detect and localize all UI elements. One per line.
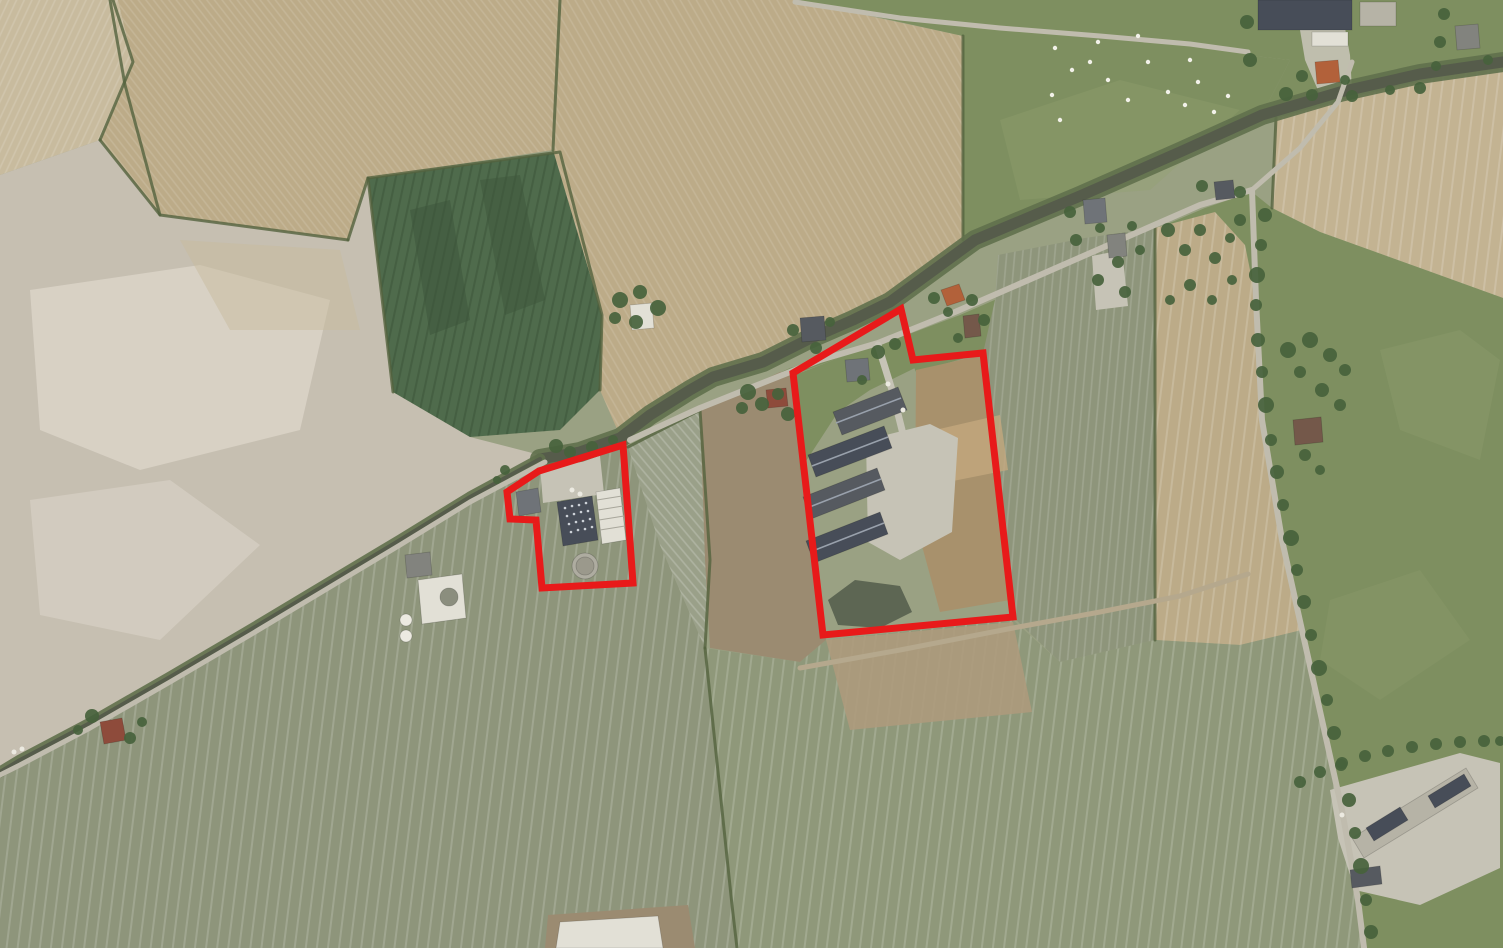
skylight-3 <box>585 502 588 505</box>
tree-52 <box>1434 36 1446 48</box>
tree-45 <box>1240 15 1254 29</box>
tree-32 <box>1119 286 1131 298</box>
brown-patch-south <box>826 622 1032 730</box>
tree-62 <box>1251 333 1265 347</box>
farm-ne-barn-large <box>1258 0 1352 30</box>
tree-26 <box>1070 234 1082 246</box>
tree-50 <box>1385 85 1395 95</box>
tree-14 <box>787 324 799 336</box>
skylight-9 <box>575 521 578 524</box>
house-grey-ne-corner <box>1455 24 1480 50</box>
sheep-7 <box>1166 90 1170 94</box>
tree-4 <box>612 292 628 308</box>
tree-80 <box>1364 925 1378 939</box>
tree-101 <box>1406 741 1418 753</box>
tree-92 <box>137 717 147 727</box>
silo-sw-farm-1 <box>400 614 412 626</box>
tree-35 <box>1194 224 1206 236</box>
tree-25 <box>1064 206 1076 218</box>
skylight-7 <box>587 510 590 513</box>
tree-41 <box>1227 275 1237 285</box>
tree-59 <box>1255 239 1267 251</box>
tree-53 <box>1438 8 1450 20</box>
tree-104 <box>1478 735 1490 747</box>
tree-0 <box>549 439 563 453</box>
tree-70 <box>1297 595 1311 609</box>
skylight-8 <box>568 523 571 526</box>
tree-11 <box>772 388 784 400</box>
sheep-11 <box>1096 40 1100 44</box>
tree-61 <box>1250 299 1262 311</box>
sheep-13 <box>1226 94 1230 98</box>
house-east-road <box>1293 417 1323 445</box>
silo-sw-farm-2 <box>400 630 412 642</box>
tree-10 <box>755 397 769 411</box>
tree-46 <box>1243 53 1257 67</box>
house-grey-pair-a <box>1083 198 1107 224</box>
tree-13 <box>736 402 748 414</box>
skylight-1 <box>571 505 574 508</box>
skylight-2 <box>578 504 581 507</box>
house-grey-pair-b <box>1107 233 1127 258</box>
sheep-10 <box>1212 110 1216 114</box>
tree-22 <box>966 294 978 306</box>
tree-77 <box>1349 827 1361 839</box>
skylight-4 <box>566 515 569 518</box>
tree-8 <box>609 312 621 324</box>
tree-102 <box>1430 738 1442 750</box>
tree-39 <box>1165 295 1175 305</box>
vehicle-0 <box>570 488 575 493</box>
aerial-map-canvas[interactable] <box>0 0 1503 948</box>
tree-96 <box>1294 776 1306 788</box>
tree-7 <box>629 315 643 329</box>
tree-79 <box>1360 894 1372 906</box>
tree-57 <box>1340 75 1350 85</box>
tree-63 <box>1256 366 1268 378</box>
house-orange-ne <box>1315 60 1340 84</box>
sheep-4 <box>1106 78 1110 82</box>
skylight-5 <box>573 513 576 516</box>
skylight-6 <box>580 511 583 514</box>
tree-36 <box>1209 252 1221 264</box>
tree-21 <box>943 307 953 317</box>
sheep-1 <box>1070 68 1074 72</box>
tree-95 <box>493 476 501 484</box>
skylight-15 <box>591 526 594 529</box>
sheep-8 <box>1183 103 1187 107</box>
tree-18 <box>889 338 901 350</box>
tree-90 <box>85 709 99 723</box>
tree-69 <box>1291 564 1303 576</box>
tree-103 <box>1454 736 1466 748</box>
sheep-12 <box>1136 34 1140 38</box>
tree-1 <box>564 446 576 458</box>
tree-38 <box>1184 279 1196 291</box>
tree-91 <box>124 732 136 744</box>
tree-16 <box>825 317 835 327</box>
skylight-14 <box>584 528 587 531</box>
tree-71 <box>1305 629 1317 641</box>
sheep-3 <box>1050 93 1054 97</box>
tree-47 <box>1279 87 1293 101</box>
farm-ne-barn-light <box>1360 2 1396 26</box>
tree-93 <box>73 725 83 735</box>
tree-65 <box>1265 434 1277 446</box>
vehicle-4 <box>12 750 17 755</box>
tree-33 <box>1161 223 1175 237</box>
tree-84 <box>1339 364 1351 376</box>
sheep-5 <box>1126 98 1130 102</box>
vehicle-6 <box>1340 813 1345 818</box>
tree-27 <box>1095 223 1105 233</box>
tree-12 <box>781 407 795 421</box>
tree-88 <box>1299 449 1311 461</box>
tree-6 <box>650 300 666 316</box>
tree-29 <box>1127 221 1137 231</box>
house-sw-farm <box>405 552 432 578</box>
tree-9 <box>740 384 756 400</box>
tree-97 <box>1314 766 1326 778</box>
tree-74 <box>1327 726 1341 740</box>
tree-99 <box>1359 750 1371 762</box>
sheep-0 <box>1053 46 1057 50</box>
tree-49 <box>1346 90 1358 102</box>
tree-64 <box>1258 397 1274 413</box>
tree-73 <box>1321 694 1333 706</box>
tree-82 <box>1302 332 1318 348</box>
tree-24 <box>953 333 963 343</box>
tree-31 <box>1092 274 1104 286</box>
tree-81 <box>1280 342 1296 358</box>
silo-tank-west-parcel-top <box>576 557 594 575</box>
tree-87 <box>1334 399 1346 411</box>
sheep-9 <box>1196 80 1200 84</box>
tree-43 <box>1196 180 1208 192</box>
tree-23 <box>978 314 990 326</box>
sheep-14 <box>1058 118 1062 122</box>
vehicle-5 <box>20 747 25 752</box>
tree-76 <box>1342 793 1356 807</box>
skylight-13 <box>577 529 580 532</box>
tree-60 <box>1249 267 1265 283</box>
house-sw-canal <box>100 718 126 744</box>
skylight-10 <box>582 520 585 523</box>
farm-ne-row <box>1312 32 1348 46</box>
skylight-0 <box>564 507 567 510</box>
house-grey-mid <box>800 316 826 342</box>
tree-28 <box>1112 256 1124 268</box>
tree-89 <box>1315 465 1325 475</box>
tree-20 <box>928 292 940 304</box>
tree-30 <box>1135 245 1145 255</box>
tree-67 <box>1277 499 1289 511</box>
tree-37 <box>1225 233 1235 243</box>
tree-78 <box>1353 858 1369 874</box>
tree-68 <box>1283 530 1299 546</box>
sheep-15 <box>1188 58 1192 62</box>
tree-42 <box>1234 214 1246 226</box>
tree-15 <box>810 342 822 354</box>
tree-17 <box>871 345 885 359</box>
barn-dark-west-parcel <box>557 496 598 546</box>
tree-56 <box>1296 70 1308 82</box>
tree-85 <box>1294 366 1306 378</box>
tree-72 <box>1311 660 1327 676</box>
tree-48 <box>1306 89 1318 101</box>
vehicle-3 <box>886 382 891 387</box>
sheep-6 <box>1146 60 1150 64</box>
vehicle-1 <box>578 492 583 497</box>
tree-44 <box>1234 186 1246 198</box>
tree-98 <box>1336 757 1348 769</box>
tree-5 <box>633 285 647 299</box>
tree-100 <box>1382 745 1394 757</box>
tree-83 <box>1323 348 1337 362</box>
sheep-2 <box>1088 60 1092 64</box>
skylight-12 <box>570 531 573 534</box>
vehicle-2 <box>901 408 906 413</box>
tree-40 <box>1207 295 1217 305</box>
tree-94 <box>500 465 510 475</box>
tree-58 <box>1258 208 1272 222</box>
tree-19 <box>857 375 867 385</box>
tree-51 <box>1414 82 1426 94</box>
map-viewport <box>0 0 1503 948</box>
house-brown-1 <box>963 314 981 338</box>
tree-66 <box>1270 465 1284 479</box>
skylight-11 <box>589 518 592 521</box>
house-north-east <box>1214 180 1235 200</box>
round-tank-sw-farm <box>440 588 458 606</box>
tree-34 <box>1179 244 1191 256</box>
tree-86 <box>1315 383 1329 397</box>
tree-54 <box>1483 55 1493 65</box>
shed-west-parcel <box>516 488 541 516</box>
tree-55 <box>1431 61 1441 71</box>
